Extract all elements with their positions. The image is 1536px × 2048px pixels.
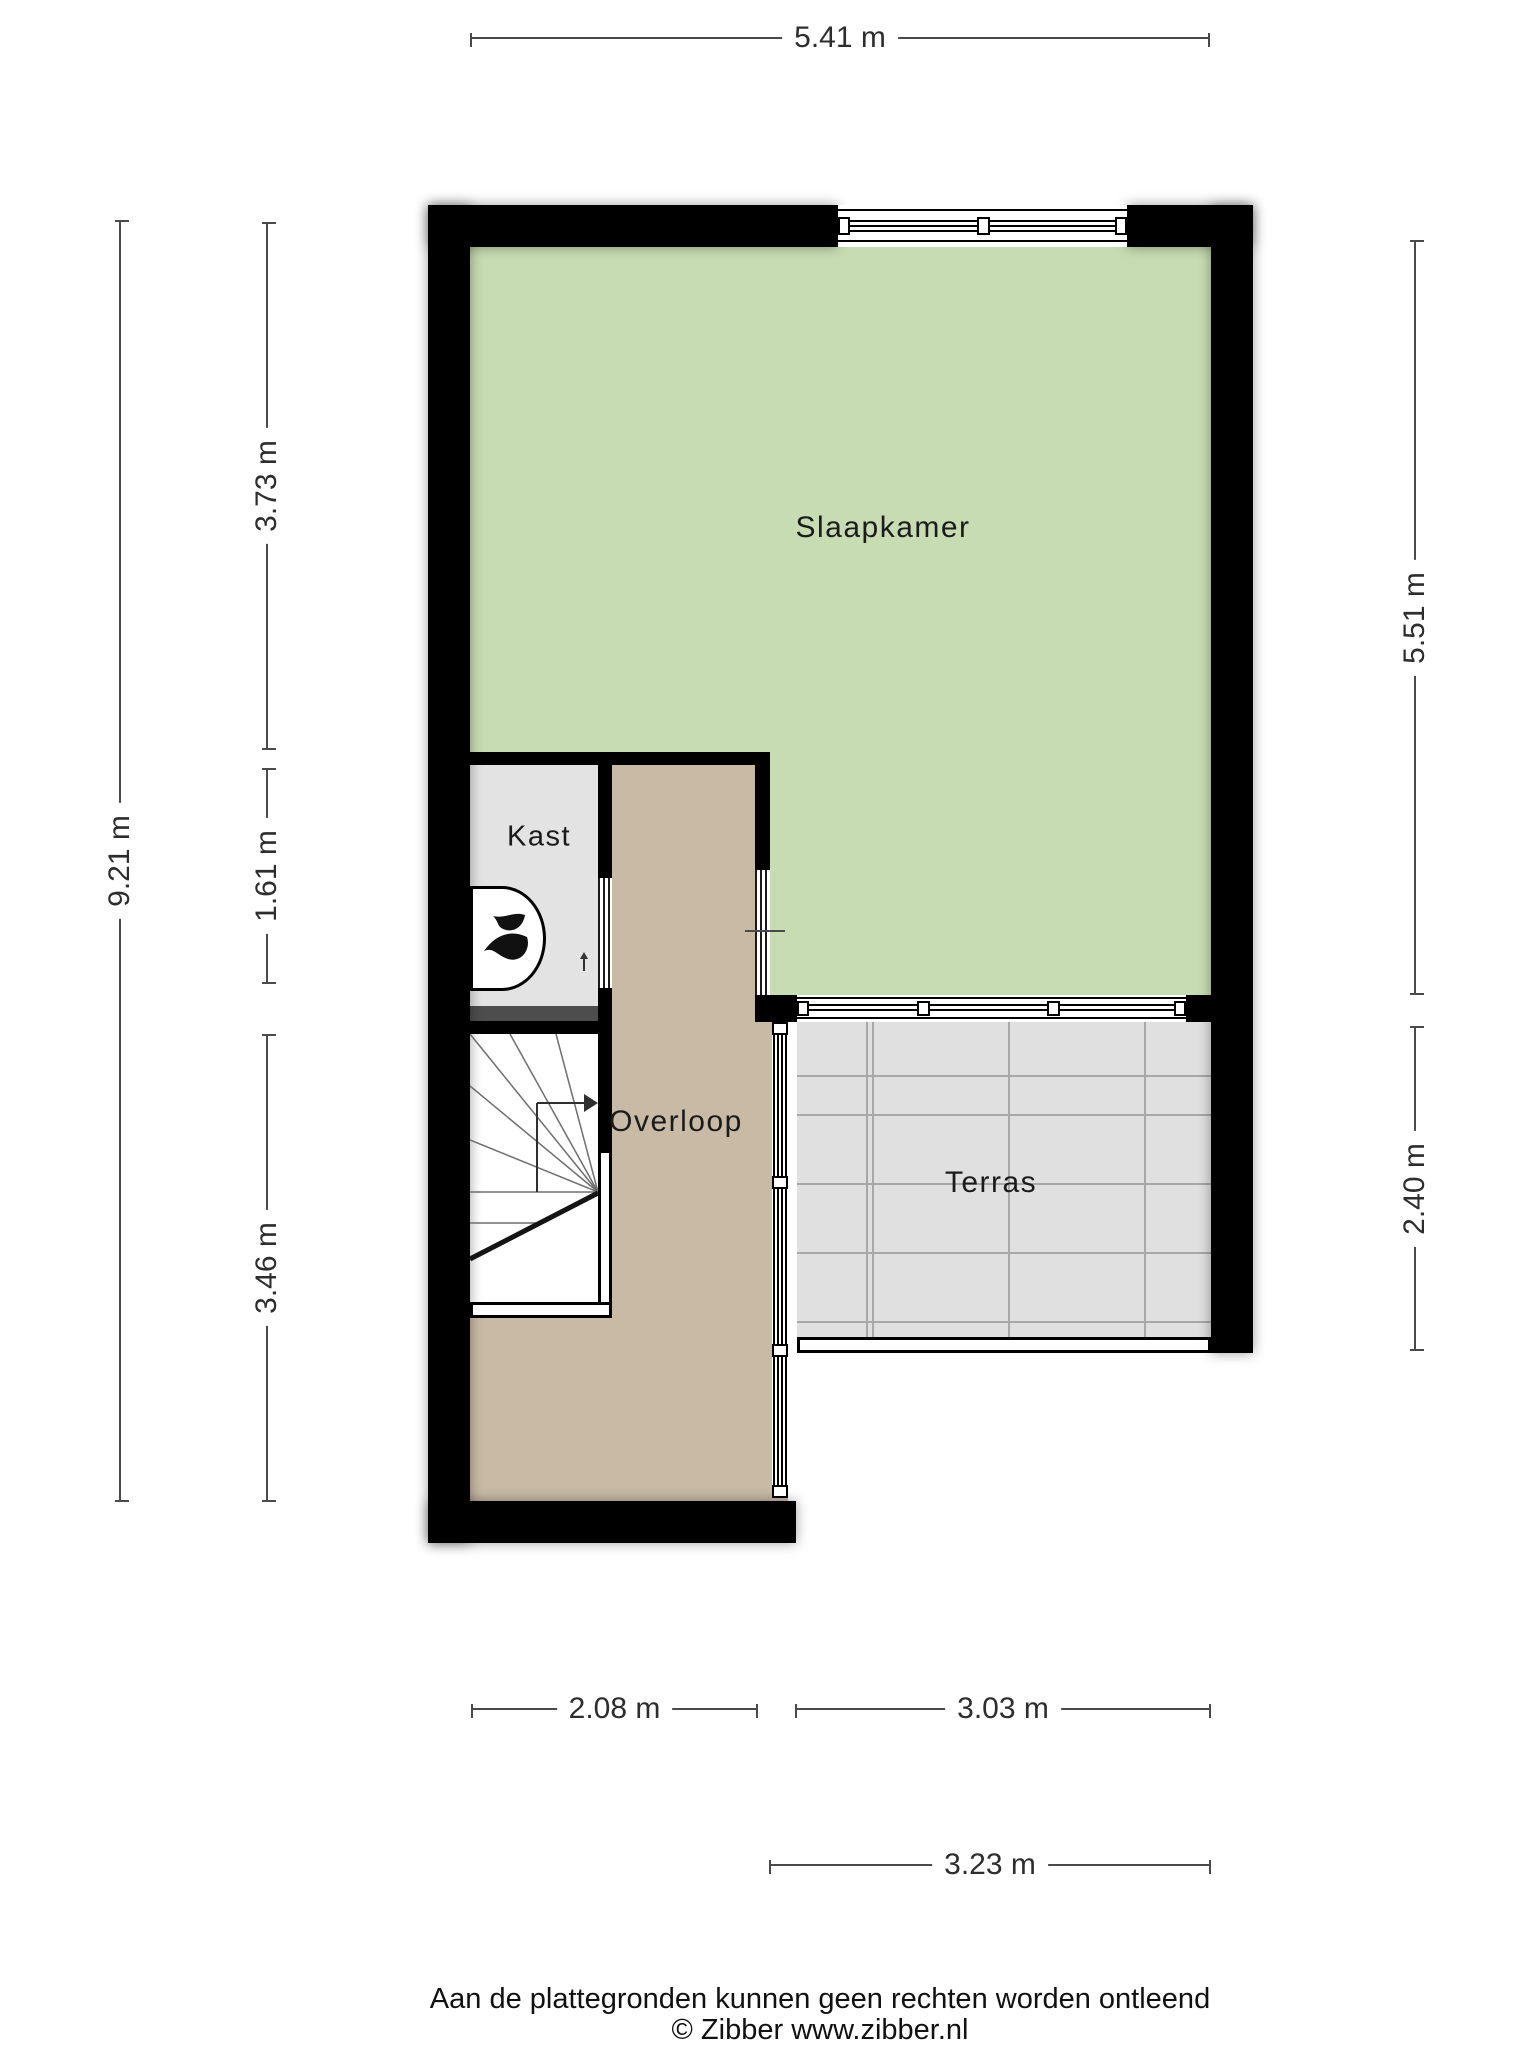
- dimension-right-lower: 2.40 m: [1414, 1026, 1416, 1351]
- room-label-kast: Kast: [507, 821, 571, 854]
- dimension-bottom-terras-outer-label: 3.23 m: [932, 1848, 1048, 1882]
- wall-kast-right-upper: [598, 765, 612, 878]
- room-label-slaapkamer: Slaapkamer: [795, 511, 970, 545]
- wall-stair-bottom: [470, 1302, 612, 1318]
- dimension-left-upper: 3.73 m: [266, 222, 268, 750]
- dimension-bottom-overloop: 2.08 m: [471, 1708, 758, 1710]
- dimension-left-middle: 1.61 m: [266, 768, 268, 984]
- wall-outer-right: [1211, 205, 1253, 1353]
- dimension-left-upper-label: 3.73 m: [250, 428, 284, 544]
- dimension-left-total: 9.21 m: [119, 220, 121, 1502]
- dimension-top-width: 5.41 m: [470, 37, 1210, 39]
- door-kast: [598, 878, 612, 988]
- window-top-post-left: [838, 217, 850, 235]
- wall-slaapkamer-kast: [467, 752, 770, 765]
- dimension-bottom-overloop-label: 2.08 m: [557, 1692, 673, 1726]
- wall-outer-bottom: [428, 1501, 796, 1543]
- window-terras-inner-face: [797, 1017, 1186, 1019]
- window-overloop-side-right-face: [785, 1022, 787, 1498]
- wall-stair-top: [470, 1021, 612, 1034]
- window-terras-post-2: [917, 1001, 930, 1016]
- window-overloop-post-1: [772, 1022, 788, 1035]
- wall-kast-right-lower: [598, 988, 612, 1021]
- window-terras-glazing-1: [797, 1004, 1186, 1006]
- door-slaapkamer: [755, 870, 770, 995]
- window-terras-post-4: [1174, 1001, 1186, 1016]
- footer-credit: © Zibber www.zibber.nl: [672, 2014, 969, 2047]
- arrow-up-icon: [578, 952, 590, 972]
- terras-railing: [797, 1337, 1211, 1353]
- dimension-bottom-terras-outer: 3.23 m: [769, 1864, 1211, 1866]
- window-overloop-side-left-face: [773, 1022, 775, 1498]
- dimension-left-lower-label: 3.46 m: [250, 1210, 284, 1326]
- slaapkamer-floor-lower: [770, 765, 1211, 995]
- window-top-inner-face: [838, 240, 1127, 242]
- dimension-top-width-label: 5.41 m: [782, 21, 898, 55]
- dimension-right-upper: 5.51 m: [1414, 240, 1416, 995]
- stairs-icon: [470, 1034, 598, 1302]
- window-overloop-post-2: [772, 1176, 788, 1189]
- window-terras-post-3: [1047, 1001, 1060, 1016]
- flame-icon: [481, 911, 531, 967]
- footer-disclaimer: Aan de plattegronden kunnen geen rechten…: [430, 1983, 1210, 2016]
- window-overloop-post-4: [772, 1485, 788, 1498]
- window-terras-glazing-2: [797, 1009, 1186, 1011]
- window-top-post-right: [1115, 217, 1127, 235]
- room-label-terras: Terras: [945, 1166, 1037, 1200]
- door-slaapkamer-leaf-line: [745, 930, 785, 932]
- wall-outer-left: [428, 205, 470, 1543]
- window-terras-outer-face: [797, 997, 1186, 999]
- dimension-left-middle-label: 1.61 m: [250, 818, 284, 934]
- wall-corner-overloop-terras: [755, 995, 797, 1022]
- window-overloop-post-3: [772, 1344, 788, 1357]
- wall-terras-window-end: [1186, 995, 1211, 1022]
- wall-outer-top-left: [428, 205, 838, 247]
- window-overloop-side-glazing-1: [777, 1022, 779, 1498]
- room-label-overloop: Overloop: [609, 1105, 743, 1139]
- dimension-right-lower-label: 2.40 m: [1398, 1131, 1432, 1247]
- wall-stair-right-lower: [598, 1150, 612, 1307]
- dimension-left-lower: 3.46 m: [266, 1034, 268, 1502]
- dimension-bottom-terras-inner: 3.03 m: [795, 1708, 1211, 1710]
- dimension-bottom-terras-inner-label: 3.03 m: [945, 1692, 1061, 1726]
- floorplan-canvas: Slaapkamer Kast Overloop Terras 5.41 m 9…: [0, 0, 1536, 2048]
- under-stair-divider: [470, 1006, 598, 1021]
- wall-slaapkamer-overloop: [755, 765, 770, 870]
- arrow-right-icon: [584, 1094, 598, 1112]
- dimension-left-total-label: 9.21 m: [103, 803, 137, 919]
- window-top-outer-face: [838, 209, 1127, 211]
- window-terras-post-1: [797, 1001, 809, 1016]
- dimension-right-upper-label: 5.51 m: [1398, 560, 1432, 676]
- window-overloop-side-glazing-2: [781, 1022, 783, 1498]
- window-top-post-middle: [977, 217, 990, 235]
- slaapkamer-floor-upper: [470, 247, 1211, 765]
